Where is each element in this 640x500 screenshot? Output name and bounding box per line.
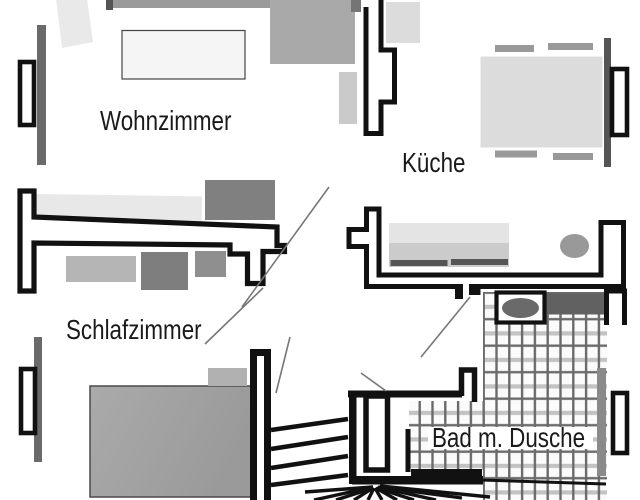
svg-text:Wohnzimmer: Wohnzimmer	[100, 106, 232, 137]
svg-text:Küche: Küche	[402, 148, 465, 179]
svg-text:Bad m. Dusche: Bad m. Dusche	[432, 423, 585, 454]
svg-text:Schlafzimmer: Schlafzimmer	[66, 315, 202, 346]
